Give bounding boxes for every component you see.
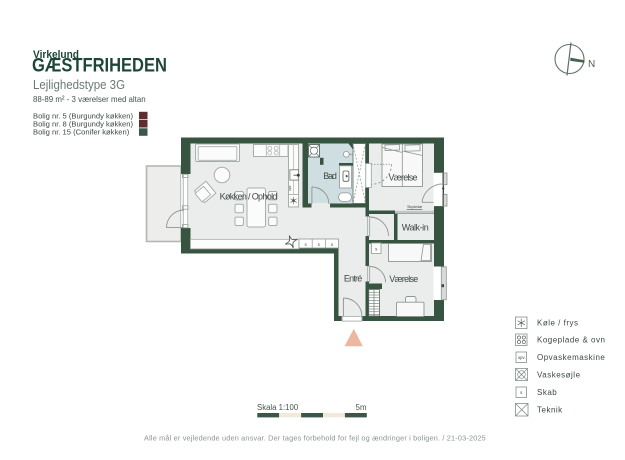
svg-text:Værelse: Værelse <box>389 274 418 284</box>
svg-text:Køle / frys: Køle / frys <box>537 319 579 328</box>
svg-text:N: N <box>588 59 595 70</box>
svg-text:88-89 m² - 3 værelser med alta: 88-89 m² - 3 værelser med altan <box>33 95 146 104</box>
svg-text:Walk-in: Walk-in <box>402 223 429 233</box>
svg-text:opv: opv <box>518 355 526 360</box>
svg-text:Køkken / Ophold: Køkken / Ophold <box>220 191 278 201</box>
svg-text:Kogeplade & ovn: Kogeplade & ovn <box>537 336 605 345</box>
svg-text:5m: 5m <box>356 403 367 412</box>
svg-text:Teknik: Teknik <box>537 406 563 415</box>
svg-text:Alle mål er vejledende uden an: Alle mål er vejledende uden ansvar. Der … <box>144 434 486 443</box>
svg-text:Skydedør: Skydedør <box>407 205 423 209</box>
svg-text:Værelse: Værelse <box>388 173 417 183</box>
svg-text:opv: opv <box>288 185 292 191</box>
svg-text:Skala 1:100: Skala 1:100 <box>257 403 299 412</box>
svg-text:Entré: Entré <box>344 274 362 284</box>
svg-text:Opvaskemaskine: Opvaskemaskine <box>537 353 605 362</box>
svg-text:Bad: Bad <box>323 171 337 181</box>
svg-text:Bolig nr. 15 (Conifer køkken): Bolig nr. 15 (Conifer køkken) <box>33 128 130 137</box>
svg-text:GÆSTFRIHEDEN: GÆSTFRIHEDEN <box>32 54 167 75</box>
svg-text:Lejlighedstype 3G: Lejlighedstype 3G <box>33 78 125 93</box>
svg-text:Vaskesøjle: Vaskesøjle <box>537 371 581 380</box>
svg-text:Skab: Skab <box>537 388 557 397</box>
